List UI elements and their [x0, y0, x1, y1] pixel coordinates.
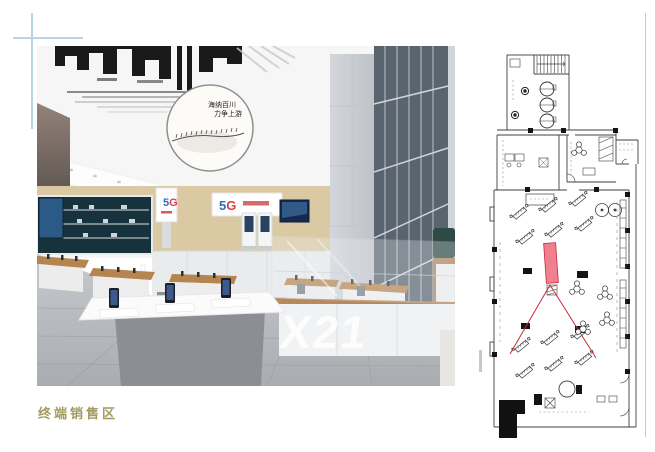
wall-mass — [499, 400, 525, 438]
stairs-icon — [537, 55, 565, 73]
highlight-zone — [544, 243, 559, 284]
vitrine-item — [297, 284, 305, 294]
door-arc — [620, 407, 629, 416]
office-room-symbols — [510, 59, 529, 119]
bottom-features — [499, 374, 629, 438]
svg-text:5G: 5G — [163, 197, 178, 209]
plan-display-tables-upper — [508, 191, 596, 245]
page-caption: 终端销售区 — [38, 403, 118, 422]
store-render-photo: 海纳百川 力争上游 — [37, 46, 455, 386]
floor-plan — [479, 42, 649, 442]
wall-shelving — [620, 200, 626, 348]
planter-icon — [521, 87, 528, 94]
logo-g: G — [169, 197, 178, 209]
planter-icon — [511, 111, 518, 118]
door-arc — [620, 374, 629, 383]
svg-text:5G: 5G — [219, 198, 236, 213]
logo-5: 5 — [219, 198, 226, 213]
logo-g: G — [226, 198, 236, 213]
store-render-graphic: 海纳百川 力争上游 — [37, 46, 455, 386]
crosshair-mark-horizontal — [13, 37, 83, 39]
right-table-leg — [440, 330, 455, 386]
table-card — [141, 265, 145, 271]
model-name-text: X21 — [277, 306, 372, 358]
ink-medallion: 海纳百川 力争上游 — [167, 85, 253, 171]
paired-round-tables — [596, 204, 622, 217]
display-table — [37, 254, 89, 292]
mid-right-room-symbols — [567, 137, 613, 182]
left-bulkhead — [37, 103, 70, 196]
medallion-calligraphy-line1: 海纳百川 — [208, 100, 236, 109]
wall-tv — [280, 200, 309, 222]
accessory-wall — [37, 196, 152, 254]
right-divider-line — [645, 13, 646, 437]
mid-left-room-symbols — [503, 140, 548, 186]
left-edge-fragment — [479, 350, 482, 372]
wall-screen — [39, 198, 63, 238]
crosshair-mark-vertical — [31, 13, 33, 129]
right-wing-symbols — [619, 144, 635, 164]
medallion-calligraphy-line2: 力争上游 — [214, 109, 242, 118]
sign-red-text-blur — [243, 201, 269, 206]
plan-walls — [490, 55, 638, 427]
lightbox-red-text-blur — [161, 211, 172, 214]
vitrine-item — [357, 286, 365, 296]
column-markers — [492, 128, 630, 374]
round-table-icon — [572, 142, 587, 156]
slide-page: 海纳百川 力争上游 — [0, 0, 655, 452]
round-booth-icons — [540, 82, 556, 128]
